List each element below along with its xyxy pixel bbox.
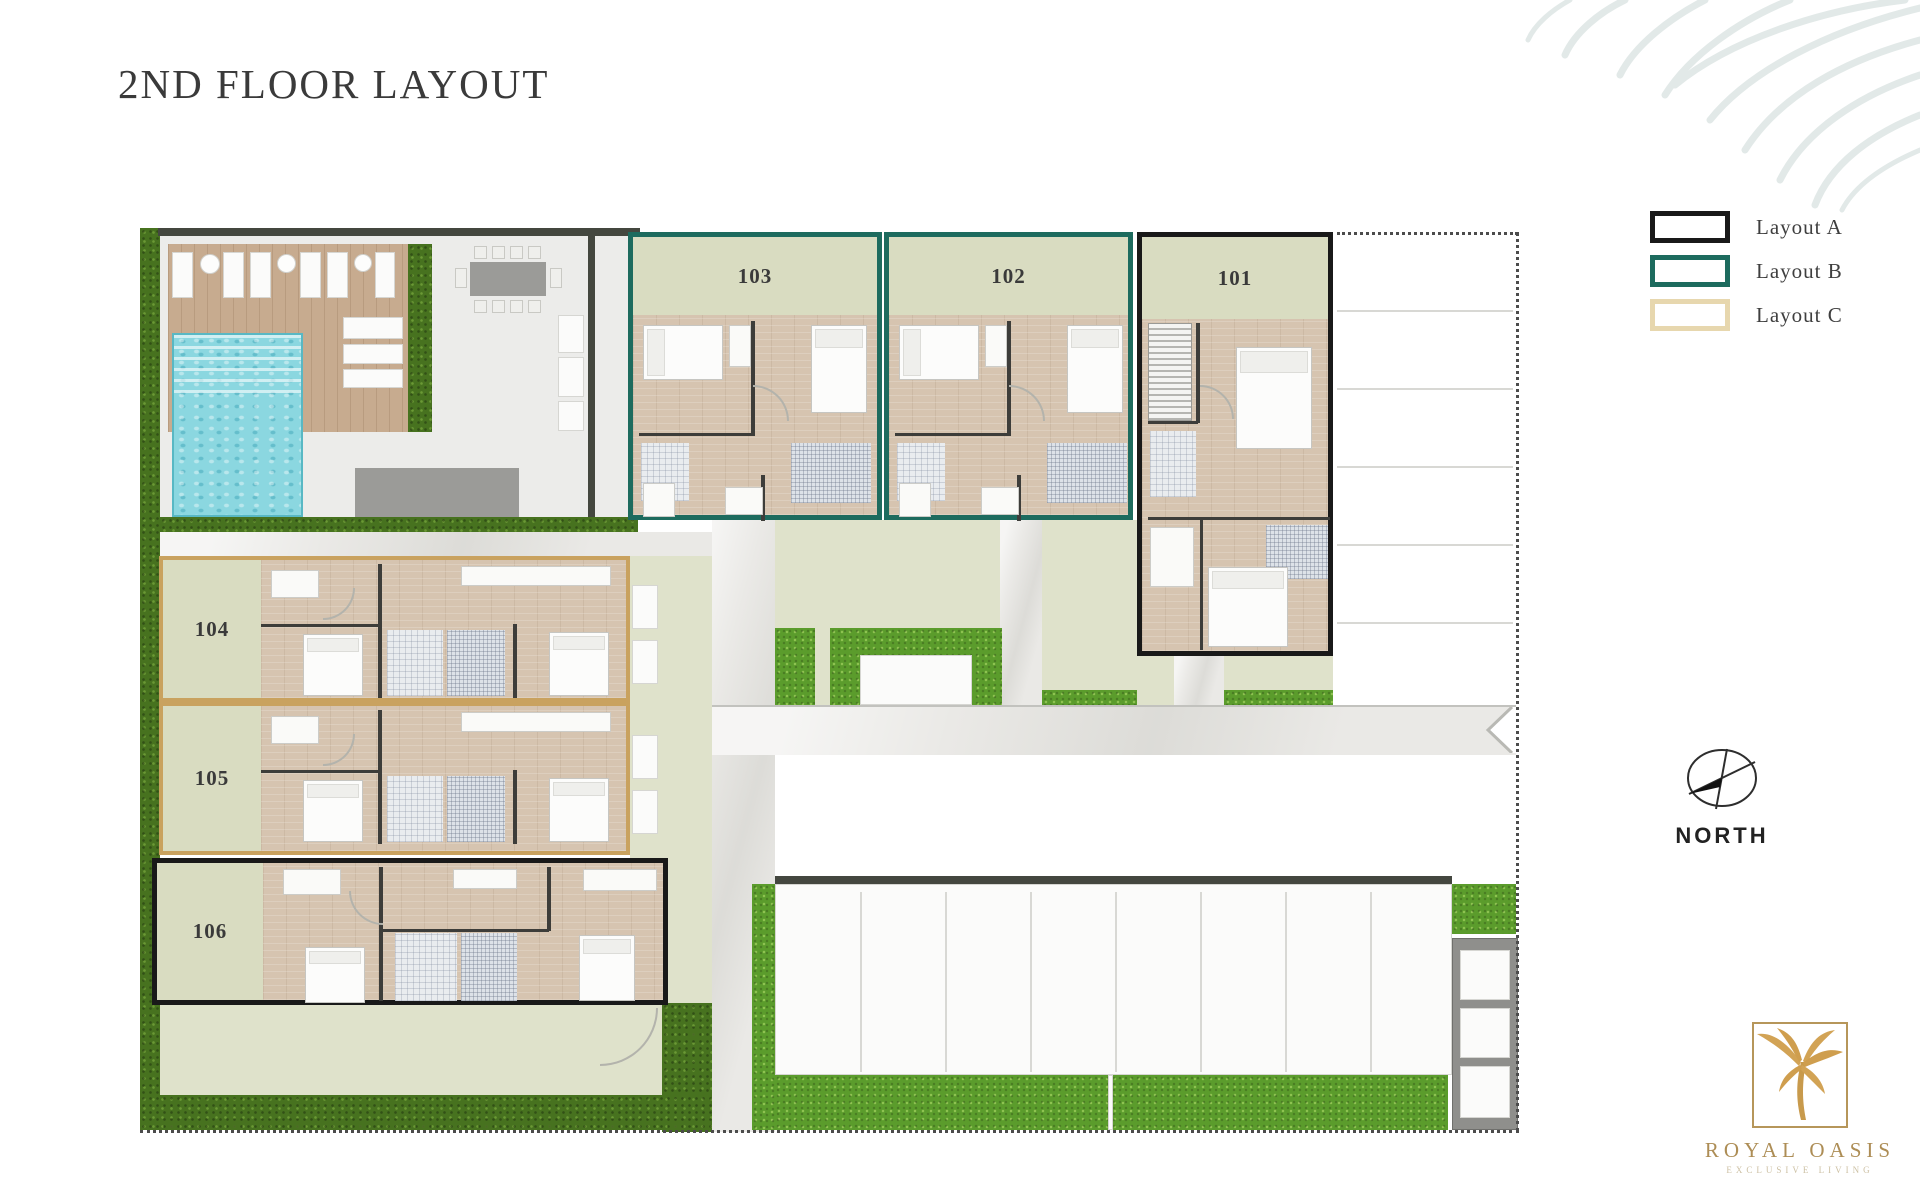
structure-grass-top xyxy=(1452,884,1516,934)
dining-table xyxy=(470,262,546,296)
bed xyxy=(305,947,365,1003)
east-parking-lines xyxy=(1337,310,1513,624)
amenity-hedge-mid xyxy=(408,244,432,432)
road-chevron xyxy=(1478,707,1516,753)
amenity-hedge-bottom xyxy=(160,517,638,532)
unit-label-band: 105 xyxy=(163,706,261,851)
sage-under-101-right xyxy=(1224,656,1333,690)
balcony xyxy=(632,790,658,834)
fixture xyxy=(981,487,1019,515)
dining-chair xyxy=(474,300,487,313)
parking-top-wall xyxy=(775,876,1452,884)
unit-label-band: 106 xyxy=(157,863,263,1000)
storage-cell xyxy=(1460,1066,1510,1118)
balcony xyxy=(632,640,658,684)
interior-wall xyxy=(378,710,382,844)
stall-divider-line xyxy=(860,892,862,1072)
interior-wall xyxy=(895,433,1011,436)
stall-divider-line xyxy=(1337,622,1513,624)
bed xyxy=(1208,567,1288,647)
stall-divider-line xyxy=(945,892,947,1072)
unit-number: 103 xyxy=(738,264,773,289)
bathroom-hatch-tile xyxy=(447,630,505,696)
brand-logo: ROYAL OASIS EXCLUSIVE LIVING xyxy=(1650,1022,1920,1175)
pool-steps xyxy=(174,335,301,393)
side-table xyxy=(354,254,372,272)
stairs xyxy=(1148,323,1192,421)
interior-wall xyxy=(1148,421,1198,424)
sun-lounger xyxy=(300,252,321,298)
fixture xyxy=(271,570,319,598)
hedge-bottom-left xyxy=(140,1095,712,1130)
boundary-dotted-right xyxy=(1516,232,1519,1132)
pergola xyxy=(860,655,972,705)
fixture xyxy=(1150,527,1194,587)
fixture xyxy=(283,869,341,895)
storage-cell xyxy=(1460,1008,1510,1058)
interior-wall xyxy=(379,867,383,1001)
logo-tagline: EXCLUSIVE LIVING xyxy=(1650,1165,1920,1175)
stall-divider-line xyxy=(1337,388,1513,390)
legend: Layout A Layout B Layout C xyxy=(1650,212,1843,344)
bathroom-hatch-tile xyxy=(1047,443,1127,503)
sun-lounger xyxy=(375,252,395,298)
pool-bench xyxy=(343,344,403,364)
grass-under-101 xyxy=(1224,690,1333,705)
storage-cell xyxy=(1460,950,1510,1000)
road-edge-top xyxy=(712,705,1516,707)
dining-chair xyxy=(528,300,541,313)
north-label: NORTH xyxy=(1652,823,1792,849)
bathroom-tile xyxy=(1150,431,1196,497)
sun-lounger xyxy=(250,252,271,298)
unit-103: 103 xyxy=(628,232,882,520)
outdoor-sofa xyxy=(558,357,584,397)
bathroom-hatch-tile xyxy=(461,933,517,1001)
sage-under-101-left xyxy=(1137,656,1174,705)
unit-number: 101 xyxy=(1218,266,1253,291)
bed xyxy=(579,935,635,1001)
compass-icon xyxy=(1685,748,1759,812)
dining-chair xyxy=(455,268,467,288)
fixture xyxy=(453,869,517,889)
floor-plan-canvas: 103102101104105106 xyxy=(0,0,1920,1198)
sun-lounger xyxy=(172,252,193,298)
legend-item-layout-b: Layout B xyxy=(1650,256,1843,286)
grass-gap xyxy=(1108,1075,1113,1130)
boundary-dotted-bottom xyxy=(140,1130,1519,1133)
interior-wall xyxy=(639,433,755,436)
bed xyxy=(303,780,363,842)
bed xyxy=(1067,325,1123,413)
fixture xyxy=(583,869,657,891)
dining-chair xyxy=(528,246,541,259)
road-horizontal xyxy=(712,705,1516,755)
parking-stall-lines xyxy=(860,892,1372,1072)
outdoor-sofa xyxy=(558,315,584,353)
road-chevron-icon xyxy=(1478,707,1516,753)
fixture xyxy=(461,566,611,586)
bathroom-tile xyxy=(387,776,443,842)
interior-wall xyxy=(1200,520,1203,650)
legend-item-layout-a: Layout A xyxy=(1650,212,1843,242)
unit-101: 101 xyxy=(1137,232,1333,656)
stall-divider-line xyxy=(1200,892,1202,1072)
side-table xyxy=(277,254,296,273)
bathroom-tile xyxy=(387,630,443,696)
balcony xyxy=(632,585,658,629)
layout-c-swatch-icon xyxy=(1650,299,1730,331)
legend-label: Layout C xyxy=(1756,303,1843,328)
layout-b-swatch-icon xyxy=(1650,255,1730,287)
fixture xyxy=(271,716,319,744)
amenity-right-wall xyxy=(588,236,595,532)
sun-lounger xyxy=(223,252,244,298)
pool-bench xyxy=(343,317,403,339)
bed xyxy=(549,632,609,696)
interior-wall xyxy=(1148,517,1330,520)
stall-divider-line xyxy=(1285,892,1287,1072)
unit-102: 102 xyxy=(884,232,1133,520)
logo-name: ROYAL OASIS xyxy=(1650,1138,1920,1163)
bed xyxy=(1236,347,1312,449)
court-path xyxy=(1000,520,1042,705)
fixture xyxy=(985,325,1007,367)
bathroom-hatch-tile xyxy=(791,443,871,503)
bed xyxy=(643,325,723,380)
sun-lounger xyxy=(327,252,348,298)
unit-label-band: 104 xyxy=(163,560,261,698)
interior-wall xyxy=(513,624,517,698)
fixture xyxy=(643,483,675,517)
unit-label-band: 101 xyxy=(1142,237,1328,319)
unit-label-band: 103 xyxy=(633,237,877,315)
unit-number: 106 xyxy=(193,919,228,944)
dining-chair xyxy=(492,246,505,259)
fixture xyxy=(461,712,611,732)
interior-wall xyxy=(261,624,381,627)
palm-logo-icon xyxy=(1755,1028,1845,1123)
storage-block xyxy=(355,468,519,517)
dining-chair xyxy=(474,246,487,259)
pool-bench xyxy=(343,369,403,388)
logo-frame xyxy=(1752,1022,1848,1128)
bathroom-hatch-tile xyxy=(447,776,505,842)
dining-chair xyxy=(510,246,523,259)
dining-chair xyxy=(492,300,505,313)
unit-number: 104 xyxy=(195,617,230,642)
amenity-top-wall xyxy=(158,228,640,236)
bathroom-tile xyxy=(395,933,457,1001)
stall-divider-line xyxy=(1370,892,1372,1072)
bed xyxy=(549,778,609,842)
stall-divider-line xyxy=(1030,892,1032,1072)
outdoor-sofa xyxy=(558,401,584,431)
fixture xyxy=(725,487,763,515)
interior-wall xyxy=(547,867,551,931)
bed xyxy=(811,325,867,413)
fixture xyxy=(729,325,751,367)
north-indicator: NORTH xyxy=(1652,748,1792,849)
stall-divider-line xyxy=(1337,466,1513,468)
parking-grass-left xyxy=(752,884,775,1130)
side-table xyxy=(200,254,220,274)
unit-number: 102 xyxy=(991,264,1026,289)
interior-wall xyxy=(513,770,517,844)
boundary-dotted-top xyxy=(1337,232,1518,235)
bed xyxy=(899,325,979,380)
sage-below-106 xyxy=(160,1003,662,1095)
interior-wall xyxy=(383,929,549,932)
layout-a-swatch-icon xyxy=(1650,211,1730,243)
unit-104: 104 xyxy=(159,556,630,702)
legend-item-layout-c: Layout C xyxy=(1650,300,1843,330)
unit-106: 106 xyxy=(152,858,668,1005)
interior-wall xyxy=(261,770,381,773)
fixture xyxy=(899,483,931,517)
interior-wall xyxy=(378,564,382,698)
unit-label-band: 102 xyxy=(889,237,1128,315)
court-grass xyxy=(775,628,815,705)
stall-divider-line xyxy=(1337,544,1513,546)
dining-chair xyxy=(550,268,562,288)
legend-label: Layout A xyxy=(1756,215,1843,240)
dining-chair xyxy=(510,300,523,313)
court-grass-strip xyxy=(1042,690,1137,705)
balcony xyxy=(632,735,658,779)
legend-label: Layout B xyxy=(1756,259,1843,284)
bed xyxy=(303,634,363,696)
stall-divider-line xyxy=(1337,310,1513,312)
unit-105: 105 xyxy=(159,702,630,855)
unit-number: 105 xyxy=(195,766,230,791)
road-under-101 xyxy=(1174,656,1224,705)
path-corridor xyxy=(160,532,712,556)
stall-divider-line xyxy=(1115,892,1117,1072)
